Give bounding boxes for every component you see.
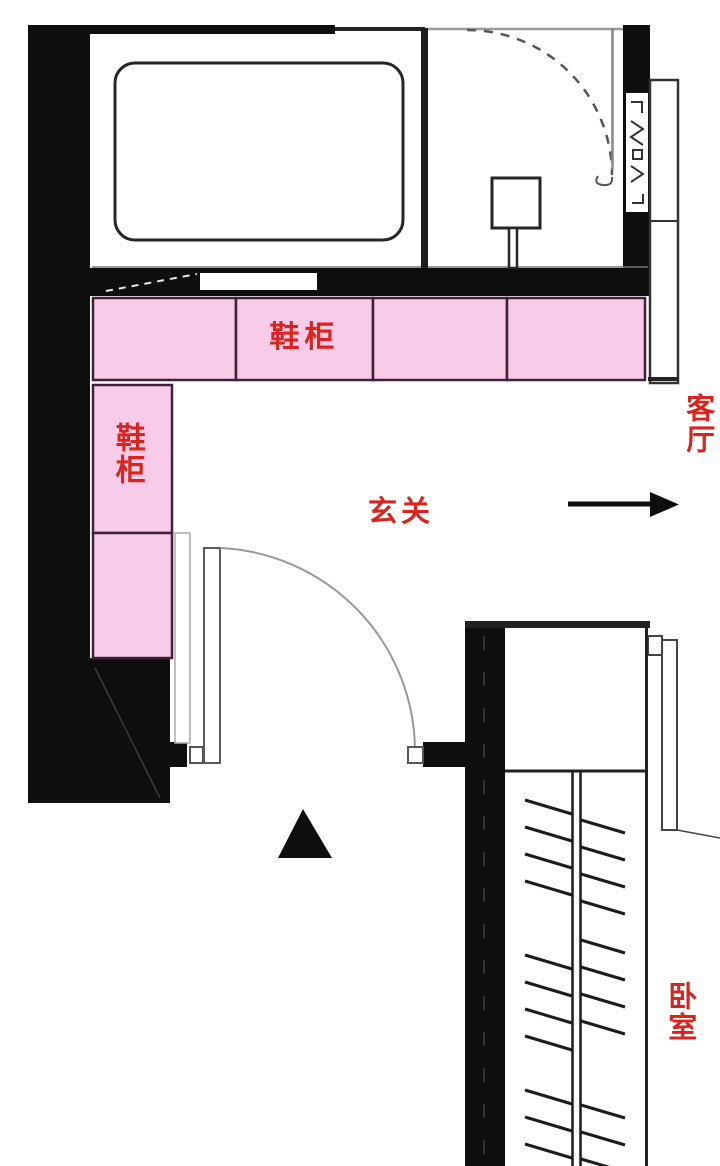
wardrobe-hatch-lines <box>525 800 625 1166</box>
entry-door-swing-arc <box>220 548 415 750</box>
door-jamb-left <box>190 747 203 763</box>
entry-marker-triangle-icon <box>278 809 332 858</box>
bedroom-label: 卧室 <box>664 981 695 1043</box>
entry-door-leaf <box>204 548 220 763</box>
entry-room-label: 玄关 <box>368 497 434 528</box>
shoe-cabinet-cell <box>507 298 645 380</box>
floor-plan: 鞋柜 鞋柜 玄关 客厅 卧室 <box>0 0 720 1166</box>
water-heater <box>626 93 648 212</box>
entry-right-wall-stub <box>423 742 467 767</box>
bedroom-wall <box>465 622 505 1166</box>
wardrobe-top-line <box>465 621 650 628</box>
left-wall <box>28 25 90 803</box>
direction-arrow-icon <box>650 492 679 517</box>
door-jamb-right <box>408 747 423 763</box>
wall-niche <box>200 273 317 290</box>
shoe-cabinet-cell <box>93 533 172 658</box>
bathroom <box>92 28 648 291</box>
shoe-cabinet-left-label: 鞋柜 <box>111 422 143 486</box>
bottom-left-wall-block <box>90 658 170 803</box>
living-room-label: 客厅 <box>682 393 713 455</box>
bathroom-bottom-wall <box>90 268 650 296</box>
bathroom-door-swing-arc <box>467 30 612 175</box>
shoe-cabinet-cell <box>93 298 236 380</box>
shoe-cabinet-label: 鞋柜 <box>236 322 373 354</box>
washbasin-stem <box>509 228 517 268</box>
door-handle-hook <box>596 176 612 185</box>
right-column-outline <box>648 80 678 383</box>
bathtub <box>115 63 403 240</box>
shoe-cabinet-cell <box>373 298 507 380</box>
door-frame-panel <box>175 533 190 743</box>
entry-left-wall-stub <box>170 742 187 767</box>
entry-door <box>175 533 423 763</box>
washbasin <box>492 178 540 228</box>
wardrobe-jamb <box>648 636 662 655</box>
floor-plan-drawing <box>0 0 720 1166</box>
exterior-column <box>650 80 678 383</box>
side-column <box>662 640 677 830</box>
bathroom-partition-wall <box>421 28 428 268</box>
side-column-tail-line <box>677 830 720 838</box>
